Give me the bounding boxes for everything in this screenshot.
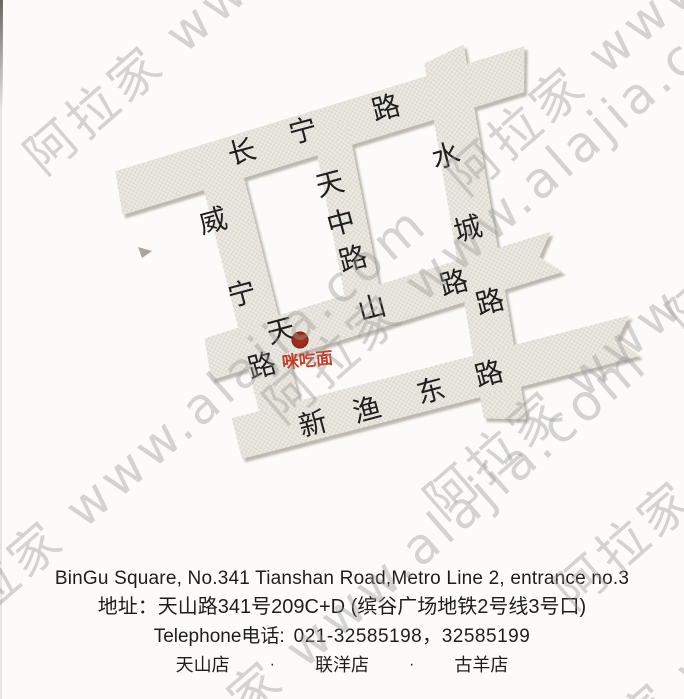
store-tianshan: 天山店: [176, 655, 230, 675]
stray-mark: [138, 247, 152, 258]
scanned-map-card: 长宁路威宁路天中路水城路天山路新渔东路 咪吃面 BinGu Square, No…: [0, 0, 684, 699]
store-separator: ·: [270, 656, 275, 673]
store-separator: ·: [409, 656, 414, 673]
street-map: 长宁路威宁路天中路水城路天山路新渔东路 咪吃面: [0, 0, 684, 560]
store-lianyang: 联洋店: [315, 655, 369, 675]
address-chinese: 地址：天山路341号209C+D (缤谷广场地铁2号线3号口): [0, 593, 684, 622]
footer-info: BinGu Square, No.341 Tianshan Road,Metro…: [0, 564, 684, 681]
store-list: 天山店·联洋店·古羊店: [0, 651, 684, 681]
marker-dot: [292, 332, 308, 348]
phone-numbers: 021-32585198，32585199: [294, 626, 531, 647]
scan-edge-dark: [0, 0, 3, 110]
phone-label: Telephone电话:: [154, 626, 285, 647]
phone-line: Telephone电话:021-32585198，32585199: [0, 622, 684, 651]
address-english: BinGu Square, No.341 Tianshan Road,Metro…: [0, 564, 684, 593]
store-guyang: 古羊店: [454, 655, 508, 675]
